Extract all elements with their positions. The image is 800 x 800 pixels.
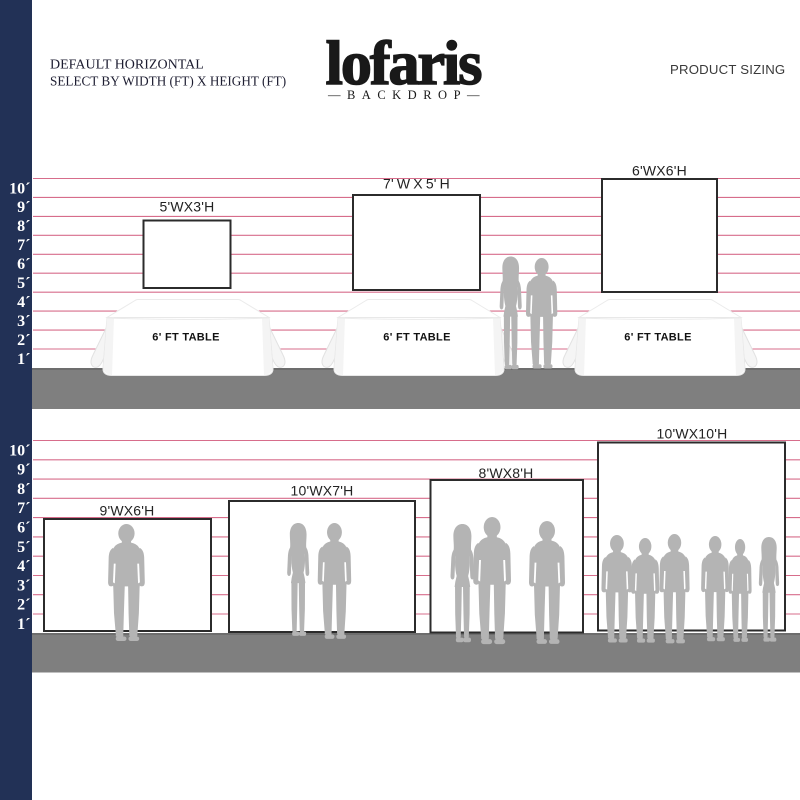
- svg-text:5´: 5´: [17, 539, 30, 556]
- svg-text:4´: 4´: [17, 294, 30, 311]
- svg-text:PRODUCT SIZING: PRODUCT SIZING: [670, 62, 785, 77]
- svg-text:10'WX7'H: 10'WX7'H: [291, 483, 354, 499]
- svg-text:9'WX6'H: 9'WX6'H: [100, 503, 155, 519]
- svg-text:—BACKDROP—: —BACKDROP—: [327, 88, 486, 102]
- svg-text:7´: 7´: [17, 237, 30, 254]
- svg-text:9´: 9´: [17, 199, 30, 216]
- svg-text:7´: 7´: [17, 500, 30, 517]
- svg-text:3´: 3´: [17, 313, 30, 330]
- svg-text:7' W X 5' H: 7' W X 5' H: [383, 176, 450, 192]
- svg-text:10´: 10´: [9, 442, 30, 459]
- svg-text:8'WX8'H: 8'WX8'H: [479, 465, 534, 481]
- svg-text:4´: 4´: [17, 558, 30, 575]
- svg-text:1´: 1´: [17, 616, 30, 633]
- svg-text:6' FT TABLE: 6' FT TABLE: [383, 332, 450, 344]
- svg-text:8´: 8´: [17, 218, 30, 235]
- svg-text:DEFAULT HORIZONTAL: DEFAULT HORIZONTAL: [50, 58, 204, 73]
- svg-text:8´: 8´: [17, 481, 30, 498]
- svg-text:2´: 2´: [17, 332, 30, 349]
- svg-text:10´: 10´: [9, 180, 30, 197]
- svg-text:1´: 1´: [17, 351, 30, 368]
- svg-text:6' FT TABLE: 6' FT TABLE: [624, 332, 691, 344]
- svg-text:5'WX3'H: 5'WX3'H: [160, 199, 215, 215]
- svg-text:9´: 9´: [17, 462, 30, 479]
- svg-text:6´: 6´: [17, 256, 30, 273]
- svg-text:6'WX6'H: 6'WX6'H: [632, 163, 687, 179]
- svg-text:5´: 5´: [17, 275, 30, 292]
- svg-text:6´: 6´: [17, 520, 30, 537]
- svg-text:10'WX10'H: 10'WX10'H: [657, 426, 728, 442]
- svg-text:SELECT BY WIDTH (FT) X HEIGHT: SELECT BY WIDTH (FT) X HEIGHT (FT): [50, 74, 286, 89]
- svg-text:3´: 3´: [17, 577, 30, 594]
- svg-text:2´: 2´: [17, 597, 30, 614]
- svg-text:6' FT TABLE: 6' FT TABLE: [152, 332, 219, 344]
